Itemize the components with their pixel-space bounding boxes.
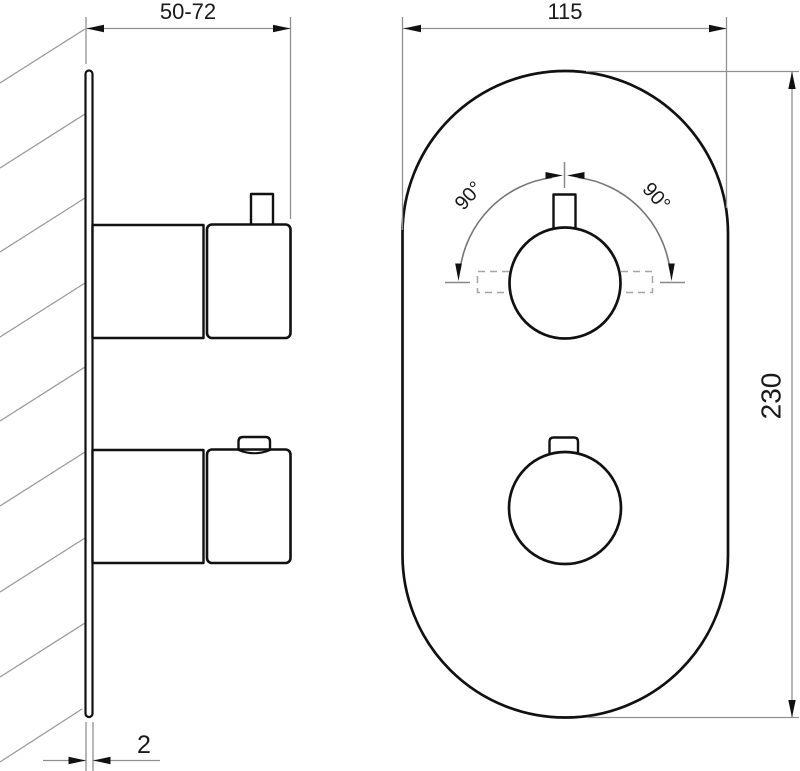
technical-drawing: 90° 90° 50-72 115 230 2 bbox=[0, 0, 800, 771]
plate-height-label: 230 bbox=[756, 373, 787, 420]
arrowhead bbox=[788, 72, 795, 90]
upper-knob-front bbox=[510, 228, 621, 339]
arrowhead bbox=[273, 25, 291, 32]
lower-valve-side bbox=[93, 437, 291, 563]
plate-thickness-label: 2 bbox=[137, 731, 151, 759]
arrowhead bbox=[404, 25, 422, 32]
hatch-line bbox=[0, 538, 85, 592]
hatch-line bbox=[0, 29, 85, 83]
hatch-line bbox=[0, 452, 85, 506]
arrowhead bbox=[87, 25, 105, 32]
lower-knob-front bbox=[509, 452, 621, 564]
hatch-line bbox=[0, 114, 85, 168]
dimension-plate-thickness: 2 bbox=[43, 722, 160, 771]
upper-handle-tab-side bbox=[251, 194, 273, 226]
arrowhead bbox=[788, 700, 795, 718]
hatch-line bbox=[0, 367, 85, 421]
upper-knob-side bbox=[207, 225, 291, 339]
upper-valve-body-side bbox=[93, 225, 204, 338]
depth-range-label: 50-72 bbox=[160, 0, 216, 24]
hatch-line bbox=[0, 623, 85, 677]
front-view: 90° 90° bbox=[403, 71, 729, 718]
side-view bbox=[86, 71, 291, 718]
lower-valve-body-side bbox=[93, 450, 204, 563]
upper-valve-side bbox=[93, 194, 291, 338]
arrowhead bbox=[709, 25, 727, 32]
hatch-line bbox=[0, 198, 85, 252]
arrowhead bbox=[69, 757, 87, 764]
plate-width-label: 115 bbox=[547, 0, 582, 24]
drawing-svg: 90° 90° 50-72 115 230 2 bbox=[0, 0, 800, 771]
dimension-depth-range: 50-72 bbox=[86, 0, 291, 219]
wall-hatch-lines bbox=[0, 29, 85, 762]
hatch-line bbox=[0, 283, 85, 337]
arrowhead bbox=[93, 757, 111, 764]
lower-knob-side bbox=[207, 450, 291, 564]
mounting-plate-side bbox=[86, 71, 93, 718]
hatch-line bbox=[0, 709, 82, 762]
